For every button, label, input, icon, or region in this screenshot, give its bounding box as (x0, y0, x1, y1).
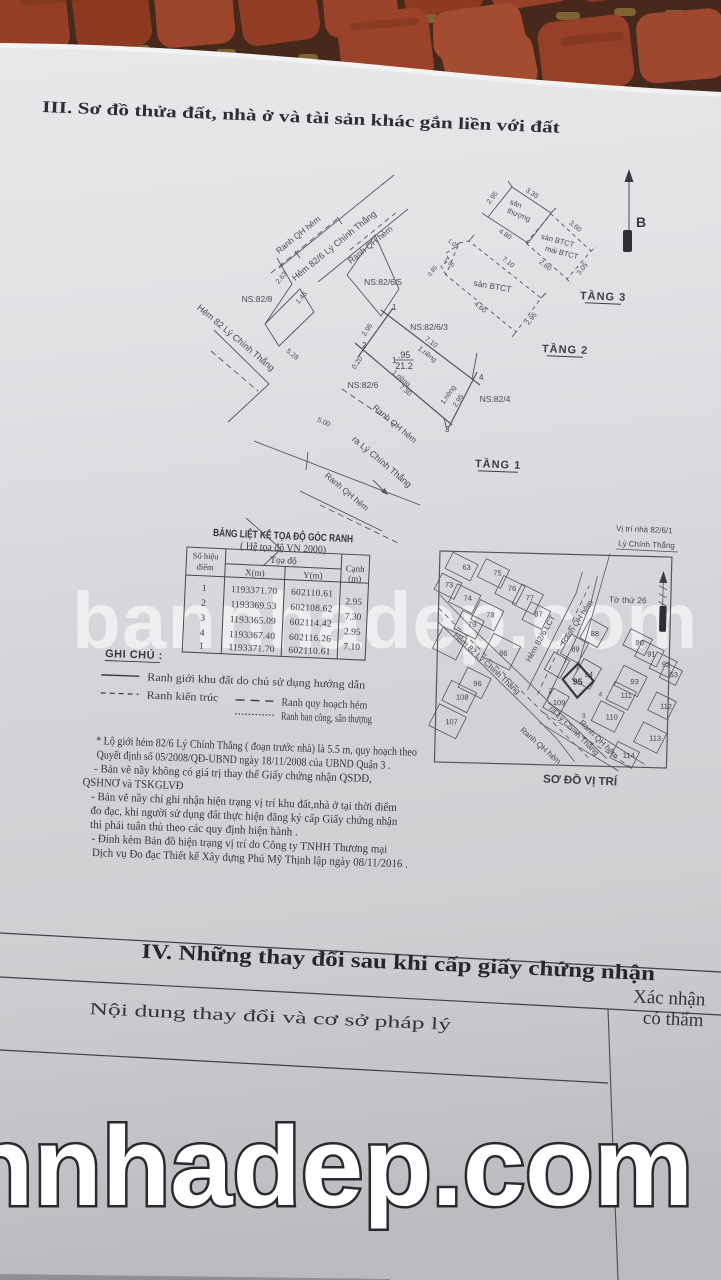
svg-text:602108.62: 602108.62 (290, 603, 333, 615)
svg-text:602110.61: 602110.61 (291, 588, 334, 600)
svg-text:1193371.70: 1193371.70 (231, 585, 278, 597)
svg-text:NS:82/4: NS:82/4 (480, 394, 511, 404)
svg-text:112: 112 (660, 702, 672, 711)
svg-text:3: 3 (200, 614, 205, 624)
svg-text:bannhadep.com: bannhadep.com (72, 576, 698, 665)
svg-text:113: 113 (649, 734, 661, 743)
svg-text:2: 2 (201, 599, 206, 609)
svg-text:107: 107 (445, 717, 458, 726)
svg-text:Tọa độ: Tọa độ (270, 556, 297, 567)
svg-text:7.10: 7.10 (343, 642, 360, 653)
svg-text:1: 1 (563, 657, 567, 664)
svg-text:602116.26: 602116.26 (289, 633, 332, 645)
svg-text:2.95: 2.95 (345, 597, 362, 608)
svg-text:nnhadep.com: nnhadep.com (0, 1104, 693, 1229)
svg-text:74: 74 (463, 594, 472, 603)
svg-text:.95: .95 (398, 350, 411, 360)
svg-text:TẦNG 3: TẦNG 3 (580, 289, 627, 304)
svg-text:96: 96 (473, 679, 482, 688)
svg-text:109: 109 (553, 698, 566, 707)
svg-text:93: 93 (630, 677, 639, 686)
svg-text:3: 3 (582, 713, 586, 720)
svg-text:21.2: 21.2 (395, 361, 413, 371)
svg-text:Tờ thứ 26: Tờ thứ 26 (609, 594, 647, 605)
svg-text:602114.42: 602114.42 (289, 618, 332, 630)
svg-text:(m): (m) (348, 573, 361, 584)
svg-text:điểm: điểm (196, 561, 214, 572)
svg-text:NS:82/6/3: NS:82/6/3 (410, 322, 448, 332)
svg-text:75: 75 (493, 568, 502, 577)
svg-text:2.95: 2.95 (344, 627, 361, 638)
svg-text:1193369.53: 1193369.53 (230, 600, 277, 612)
svg-text:53: 53 (670, 670, 679, 679)
svg-text:NS:82/6: NS:82/6 (348, 380, 379, 390)
svg-text:95: 95 (572, 677, 582, 687)
svg-text:X(m): X(m) (245, 567, 265, 578)
svg-text:4: 4 (479, 373, 484, 382)
svg-text:Y(m): Y(m) (303, 570, 323, 581)
svg-text:92: 92 (662, 660, 671, 669)
svg-text:78: 78 (486, 610, 495, 619)
svg-text:1193367.40: 1193367.40 (229, 630, 276, 642)
svg-text:90: 90 (635, 638, 644, 647)
svg-text:B: B (636, 214, 646, 230)
svg-text:Số hiệu: Số hiệu (193, 550, 220, 561)
svg-text:108: 108 (456, 692, 469, 701)
svg-text:76: 76 (508, 584, 517, 593)
svg-text:NS:82/8: NS:82/8 (242, 294, 273, 304)
svg-text:1193371.70: 1193371.70 (228, 643, 275, 655)
svg-text:79: 79 (468, 620, 477, 629)
svg-text:73: 73 (445, 580, 454, 589)
svg-text:88: 88 (591, 629, 600, 638)
svg-text:TẦNG 2: TẦNG 2 (542, 342, 589, 357)
svg-text:77: 77 (526, 593, 535, 602)
svg-text:110: 110 (606, 712, 618, 721)
svg-text:4: 4 (598, 691, 602, 698)
svg-text:111: 111 (620, 691, 632, 700)
svg-text:TẦNG 1: TẦNG 1 (475, 457, 522, 472)
svg-text:91: 91 (647, 649, 656, 658)
svg-text:89: 89 (571, 644, 580, 653)
svg-text:94: 94 (585, 670, 594, 679)
svg-text:86: 86 (499, 649, 508, 658)
svg-text:114: 114 (623, 751, 635, 760)
svg-text:có thẩm: có thẩm (642, 1008, 704, 1032)
svg-text:63: 63 (462, 563, 471, 572)
svg-text:1: 1 (202, 584, 207, 594)
svg-text:602110.61: 602110.61 (288, 646, 331, 658)
svg-text:1: 1 (199, 642, 204, 652)
svg-text:7.30: 7.30 (344, 612, 361, 623)
svg-text:NS:82/6/5: NS:82/6/5 (364, 277, 402, 287)
svg-text:4: 4 (199, 629, 204, 639)
svg-text:2: 2 (548, 688, 552, 695)
svg-text:1: 1 (392, 303, 397, 312)
svg-text:87: 87 (534, 609, 543, 618)
svg-text:1193365.09: 1193365.09 (230, 615, 277, 627)
svg-text:3: 3 (445, 425, 450, 434)
svg-text:GHI CHÚ :: GHI CHÚ : (105, 647, 163, 662)
svg-text:2: 2 (362, 341, 367, 350)
